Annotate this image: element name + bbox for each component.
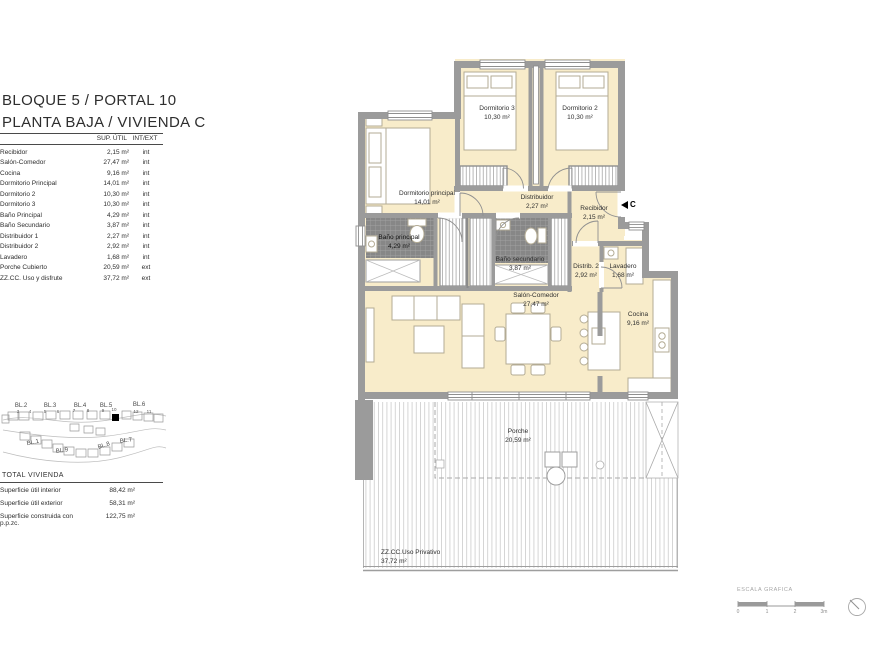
total-row: Superficie construida con p.p.zc.122,75 … — [0, 513, 135, 527]
col-sup-util: SUP. ÚTIL — [75, 135, 127, 142]
unit-number: 4 — [29, 409, 32, 414]
unit-number: 5 — [44, 409, 47, 414]
floorplan-sheet: BLOQUE 5 / PORTAL 10 PLANTA BAJA / VIVIE… — [0, 0, 870, 652]
room-label-bano-principal: Baño principal4,29 m² — [378, 233, 419, 251]
table-row: Baño Principal4,29 m²int — [0, 210, 163, 221]
total-row: Superficie útil interior88,42 m² — [0, 487, 135, 494]
table-row: Salón-Comedor27,47 m²int — [0, 158, 163, 169]
total-rule — [0, 482, 163, 483]
unit-number: 7 — [73, 408, 76, 413]
table-row: Recibidor2,15 m²int — [0, 147, 163, 158]
room-label-dormitorio-principal: Dormitorio principal14,01 m² — [399, 189, 455, 207]
entry-marker: C — [621, 200, 636, 209]
sheet-title-line1: BLOQUE 5 / PORTAL 10 — [2, 92, 176, 109]
room-label-bano-secundario: Baño secundario3,87 m² — [496, 255, 545, 273]
entry-arrow-icon — [621, 201, 628, 209]
scale-tick-2: 2 — [794, 609, 797, 615]
room-label-porche: Porche20,59 m² — [505, 427, 531, 445]
room-label-dormitorio-3: Dormitorio 310,30 m² — [479, 104, 514, 122]
unit-number: 3 — [17, 409, 20, 414]
table-row: Distribuidor 22,92 m²int — [0, 242, 163, 253]
table-row: Distribuidor 12,27 m²int — [0, 231, 163, 242]
table-row: Dormitorio 210,30 m²int — [0, 189, 163, 200]
table-row: Porche Cubierto20,59 m²ext — [0, 263, 163, 274]
room-label-distribuidor: Distribuidor2,27 m² — [521, 193, 554, 211]
unit-number: 10 — [111, 407, 116, 412]
table-row: ZZ.CC. Uso y disfrute37,72 m²ext — [0, 273, 163, 284]
table-rule-bottom — [0, 144, 163, 145]
shaft — [534, 66, 539, 184]
area-table-header: SUP. ÚTIL INT/EXT — [0, 135, 163, 142]
room-label-lavadero: Lavadero1,68 m² — [609, 262, 636, 280]
north-compass-icon — [849, 599, 866, 616]
room-label-salon-comedor: Salón-Comedor27,47 m² — [513, 291, 559, 309]
scale-tick-1: 1 — [766, 609, 769, 615]
table-row: Baño Secundario3,87 m²int — [0, 221, 163, 232]
block-label-bl6: BL.6 — [133, 402, 145, 408]
col-int-ext: INT/EXT — [127, 135, 163, 142]
total-row: Superficie útil exterior58,31 m² — [0, 500, 135, 507]
scale-tick-0: 0 — [737, 609, 740, 615]
unit-number: 9 — [102, 408, 105, 413]
unit-number: 6 — [57, 409, 60, 414]
scale-tick-3: 3m — [821, 609, 828, 615]
entry-letter: C — [630, 200, 636, 209]
porch-deck — [355, 400, 678, 571]
sheet-title-line2: PLANTA BAJA / VIVIENDA C — [2, 114, 206, 131]
room-label-zzcc-uso-privativo: ZZ.CC.Uso Privativo37,72 m² — [381, 548, 440, 566]
scale-bar — [738, 601, 824, 607]
room-label-distrib-2: Distrib. 22,92 m² — [573, 262, 599, 280]
scale-bar-title: ESCALA GRAFICA — [737, 587, 793, 593]
table-row: Dormitorio Principal14,01 m²int — [0, 179, 163, 190]
table-row: Cocina9,16 m²int — [0, 168, 163, 179]
unit-number: 12 — [133, 409, 138, 414]
unit-number: 11 — [147, 409, 152, 414]
room-label-dormitorio-2: Dormitorio 210,30 m² — [562, 104, 597, 122]
table-row: Dormitorio 310,30 m²int — [0, 200, 163, 211]
table-rule-top — [0, 133, 163, 134]
table-row: Lavadero1,68 m²int — [0, 252, 163, 263]
total-title: TOTAL VIVIENDA — [2, 472, 64, 479]
current-unit-marker — [112, 414, 119, 421]
room-label-cocina: Cocina9,16 m² — [627, 310, 649, 328]
unit-number: 8 — [87, 408, 90, 413]
site-sketch — [2, 411, 166, 462]
room-label-recibidor: Recibidor2,15 m² — [580, 204, 607, 222]
